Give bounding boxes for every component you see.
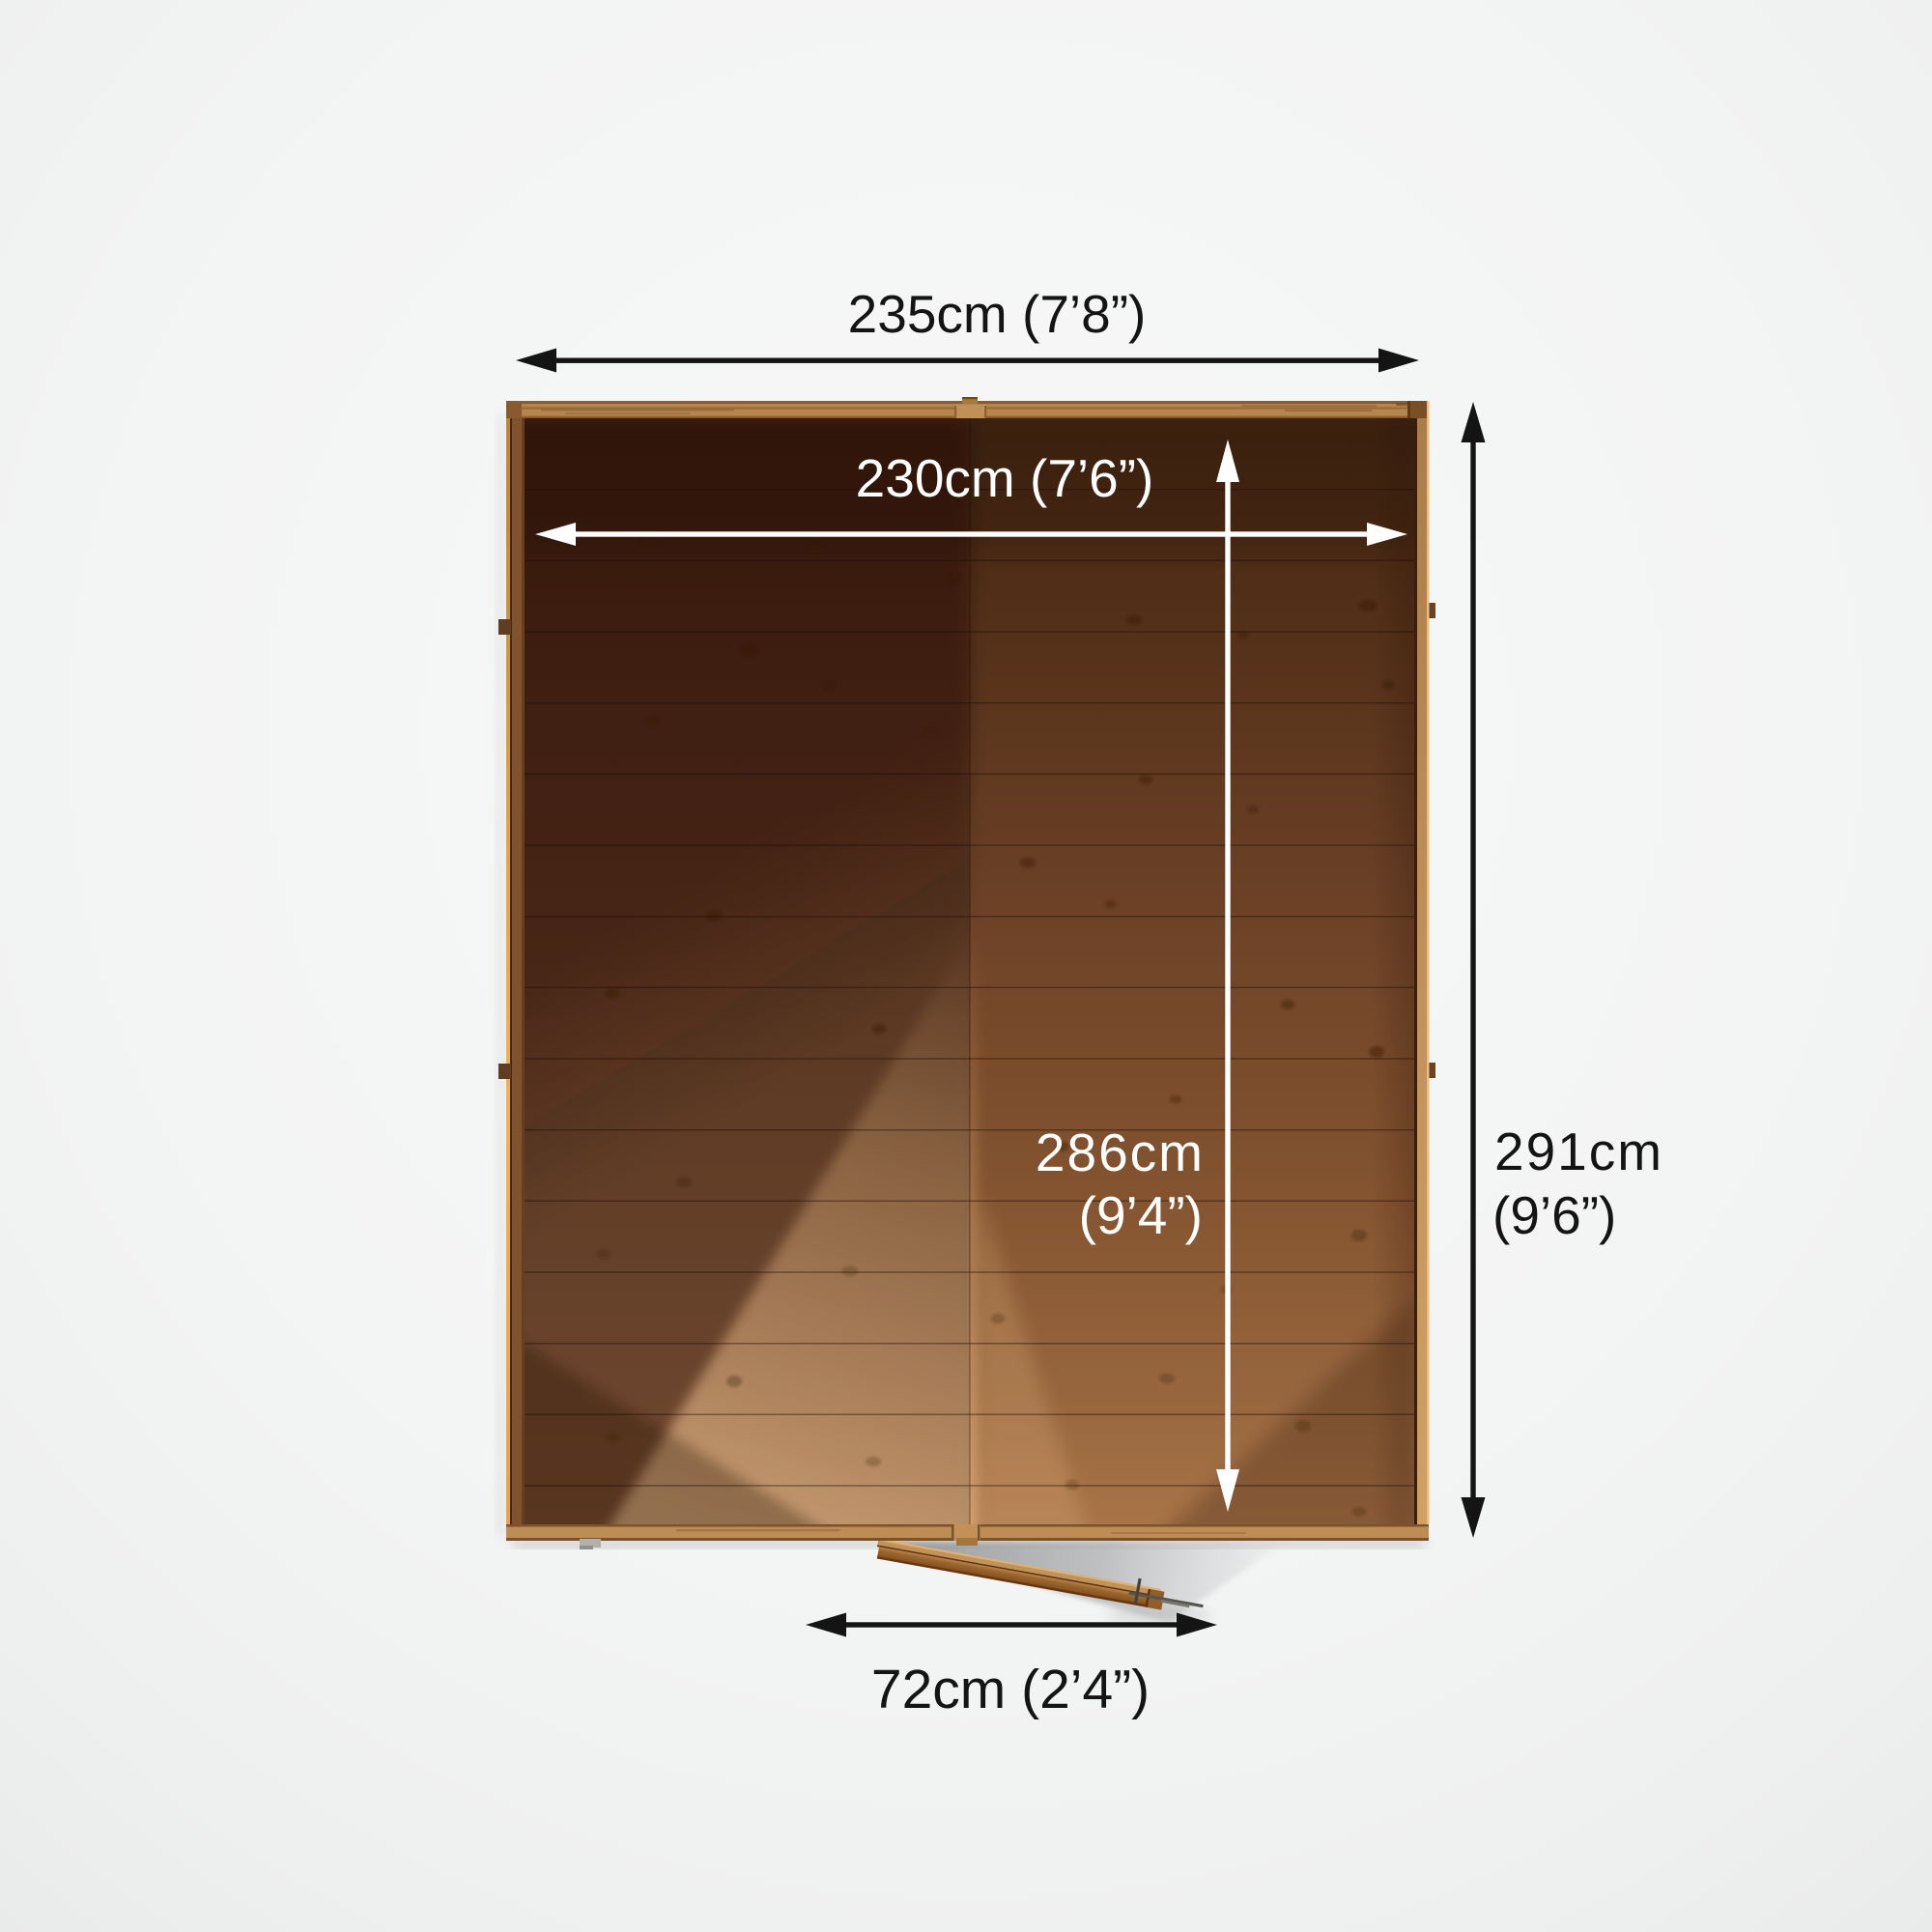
- svg-text:291cm: 291cm: [1494, 1122, 1663, 1181]
- svg-text:(9’6”): (9’6”): [1492, 1185, 1616, 1245]
- svg-text:72cm (2’4”): 72cm (2’4”): [871, 1659, 1150, 1720]
- svg-text:286cm: 286cm: [1036, 1122, 1205, 1182]
- svg-text:235cm (7’8”): 235cm (7’8”): [848, 284, 1147, 344]
- svg-text:(9’4”): (9’4”): [1079, 1185, 1203, 1245]
- svg-text:230cm (7’6”): 230cm (7’6”): [856, 448, 1154, 508]
